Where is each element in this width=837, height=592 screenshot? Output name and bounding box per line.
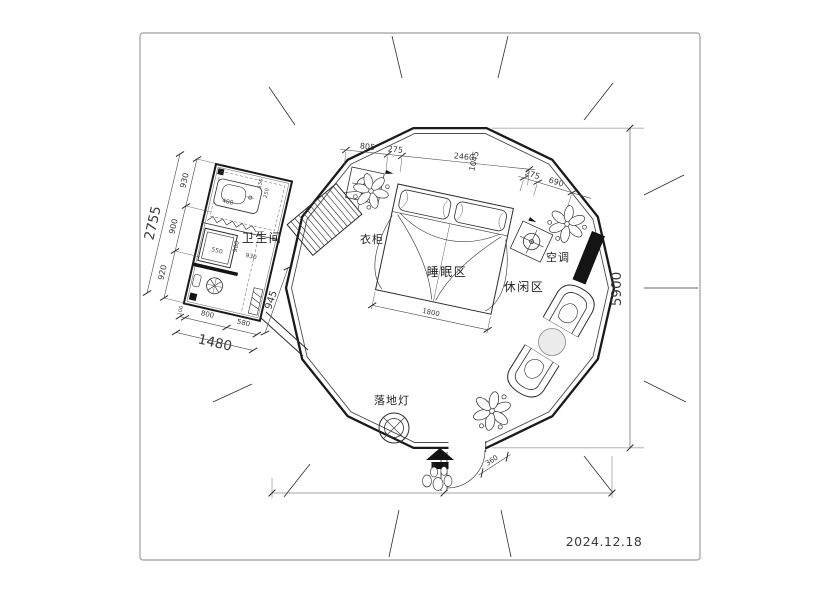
floor-plan-canvas: 5900 805 275 2460 1045 275 690 xyxy=(0,0,837,592)
leisure-area-label: 休闲区 xyxy=(504,280,545,294)
dim-top-805: 805 xyxy=(359,141,375,152)
floor-plan-page: 5900 805 275 2460 1045 275 690 xyxy=(0,0,837,592)
ac-label: 空调 xyxy=(546,250,570,264)
shower-stall: 550 xyxy=(198,228,238,268)
bathroom-label: 卫生间 xyxy=(242,231,283,245)
door-opening xyxy=(449,441,486,451)
sleeping-area-label: 睡眠区 xyxy=(427,265,468,279)
floor-lamp-label: 落地灯 xyxy=(374,394,410,407)
date-label: 2024.12.18 xyxy=(566,534,643,549)
leisure-table xyxy=(539,329,566,356)
dim-height-label: 5900 xyxy=(609,272,625,306)
dim-top-275: 275 xyxy=(387,144,403,155)
